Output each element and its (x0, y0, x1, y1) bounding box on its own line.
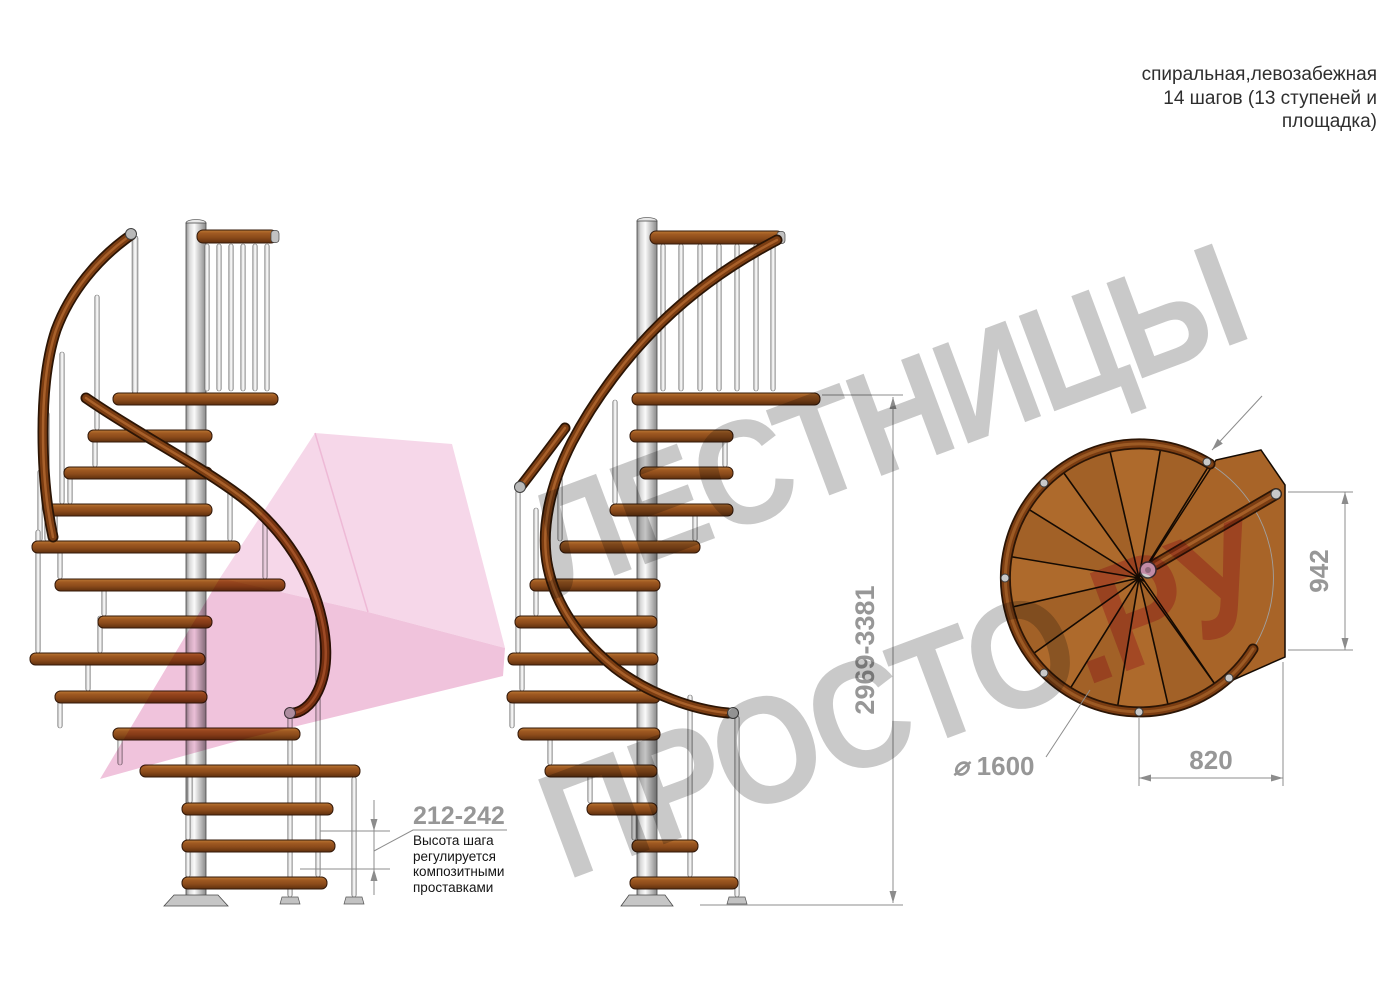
annotation-line-2: регулируется (413, 849, 504, 865)
handrail-left-outer (43, 235, 131, 537)
plan-view (1001, 444, 1285, 716)
staircase-drawing-page: 2969-3381 212-242 942 820 ⌀1600 ЛЕСТНИЦЫ… (0, 0, 1400, 1000)
rail-end-cap (271, 231, 279, 243)
dimension-total-height: 2969-3381 (850, 585, 880, 714)
landing-platform (632, 393, 820, 405)
title-line-3: площадка) (957, 110, 1377, 134)
floor-foot (344, 897, 364, 904)
handrail-cap (515, 482, 526, 493)
side-view-front (507, 218, 820, 907)
dimension-landing-depth: 942 (1304, 549, 1334, 592)
title-line-1: спиральная,левозабежная (957, 63, 1377, 87)
diameter-value: 1600 (977, 751, 1035, 781)
floor-foot (727, 897, 747, 904)
dimension-diameter: ⌀1600 (953, 751, 1035, 781)
base-flange (164, 895, 228, 906)
steps-front (507, 393, 820, 889)
dimension-landing-width: 820 (1189, 745, 1232, 775)
baluster-top (1271, 489, 1281, 499)
landing-platform (113, 393, 278, 405)
handrail-cap (728, 708, 739, 719)
annotation-line-4: проставками (413, 880, 504, 896)
landing-guard-rail (197, 230, 277, 243)
dimension-step-height: 212-242 (413, 802, 505, 830)
annotation-line-1: Высота шага (413, 833, 504, 849)
floor-foot (280, 897, 300, 904)
handrail-cap (126, 229, 137, 240)
diameter-symbol: ⌀ (953, 751, 972, 781)
annotation-step-height: Высота шага регулируется композитными пр… (413, 833, 504, 895)
annotation-line-3: композитными (413, 864, 504, 880)
product-title: спиральная,левозабежная 14 шагов (13 сту… (957, 63, 1377, 134)
plan-center-column-core (1145, 567, 1151, 573)
drawing-canvas: 2969-3381 212-242 942 820 ⌀1600 (0, 0, 1400, 1000)
base-flange (621, 895, 673, 906)
title-line-2: 14 шагов (13 ступеней и (957, 87, 1377, 111)
brand-arrow-watermark (100, 433, 505, 779)
